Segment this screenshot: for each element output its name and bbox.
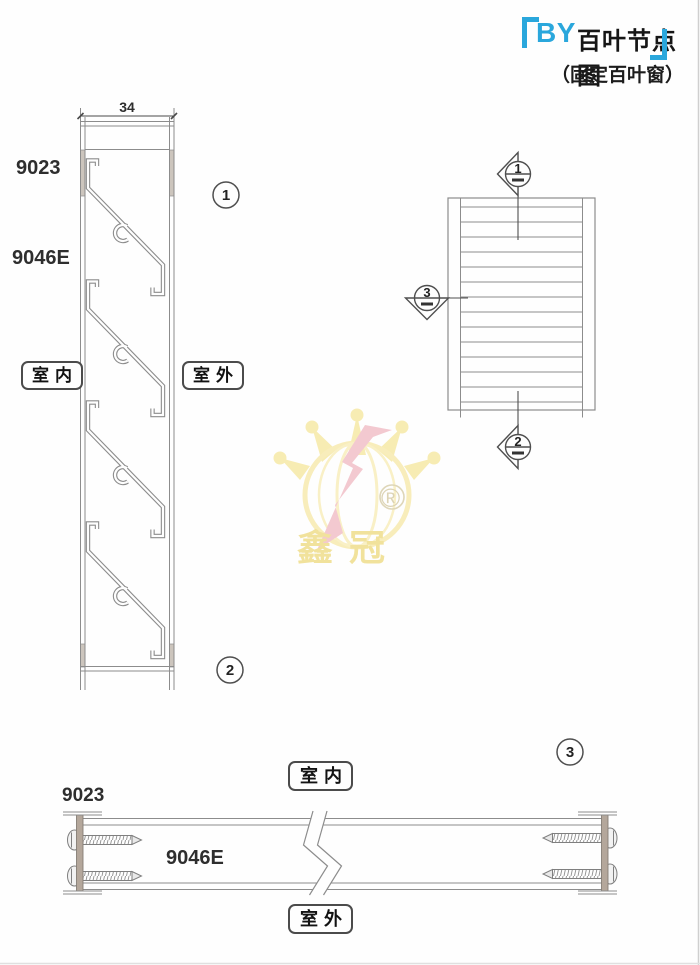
louver-slat — [88, 403, 163, 537]
registered-icon: ® — [381, 483, 400, 514]
indoor-label: 室内 — [21, 361, 83, 390]
break-line — [304, 811, 342, 895]
louver-slat — [88, 524, 163, 658]
plan-view-drawing — [406, 153, 596, 469]
marker-number-3: 3 — [417, 285, 437, 300]
page-subtitle: （固定百叶窗） — [551, 60, 684, 87]
detail-number-3: 3 — [560, 744, 580, 761]
watermark-brand: 鑫冠 — [297, 519, 401, 571]
detail-number-1: 1 — [216, 187, 236, 204]
title-bracket-right-icon — [650, 29, 667, 60]
outdoor-label: 室外 — [288, 904, 353, 934]
indoor-label: 室内 — [288, 761, 353, 791]
drawing-sheet: BY 百叶节点图 （固定百叶窗） 34 9023 9046E 室内 室外 1 2… — [0, 0, 700, 965]
marker-number-2: 2 — [508, 434, 528, 449]
dimension-label: 34 — [108, 99, 146, 115]
title-prefix: BY — [536, 17, 576, 49]
outdoor-label: 室外 — [182, 361, 244, 390]
plan-louver-lines — [461, 207, 583, 402]
detail-number-2: 2 — [220, 662, 240, 679]
louver-slat — [88, 161, 163, 295]
drawing-canvas — [0, 0, 700, 965]
profile-label-9023: 9023 — [16, 157, 61, 180]
marker-number-1: 1 — [508, 161, 528, 176]
profile-label-9046e: 9046E — [166, 847, 224, 870]
louver-slat — [88, 282, 163, 416]
profile-label-9023: 9023 — [62, 785, 104, 807]
profile-label-9046e: 9046E — [12, 247, 70, 270]
section-marker-2 — [498, 391, 531, 469]
